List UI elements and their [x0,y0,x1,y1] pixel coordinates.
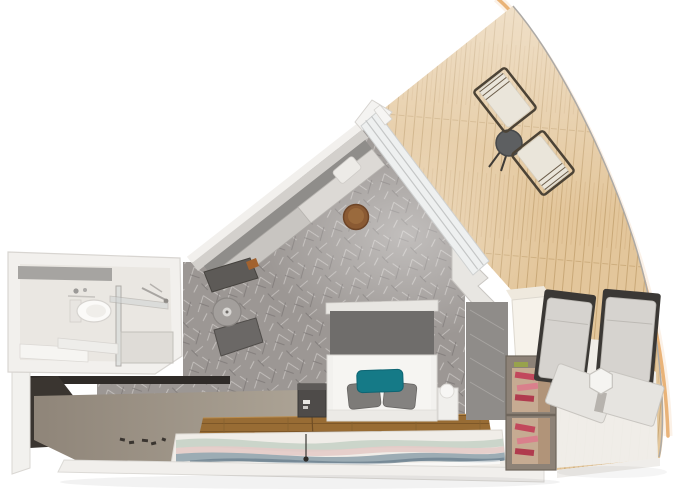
lounger-cushion [599,297,656,383]
bed-foot-bench [327,410,437,421]
side-table-top [590,368,613,394]
floorplan-render [0,0,680,491]
floor-lamp-base [303,456,308,461]
bathroom [8,252,182,374]
balcony-shadow [557,466,667,478]
mirror-strip [18,266,112,281]
nightstand-right [438,384,458,420]
outer-wall-left [12,370,30,474]
sun-lounger-2 [595,289,665,427]
double-bed [326,300,438,421]
headboard [330,311,434,356]
nightstand-left [298,384,326,417]
nightstand-label [303,400,310,404]
coffee-table [344,205,369,230]
cabin-shadow [60,475,560,489]
coffee-table-top [348,208,364,224]
nightstand-lamp [440,384,454,398]
shower-tray [121,332,173,363]
floorplan-svg [0,0,680,491]
toilet-seat [86,305,106,318]
teal-accent-pillow [357,369,404,393]
shelf-plant [514,362,528,367]
